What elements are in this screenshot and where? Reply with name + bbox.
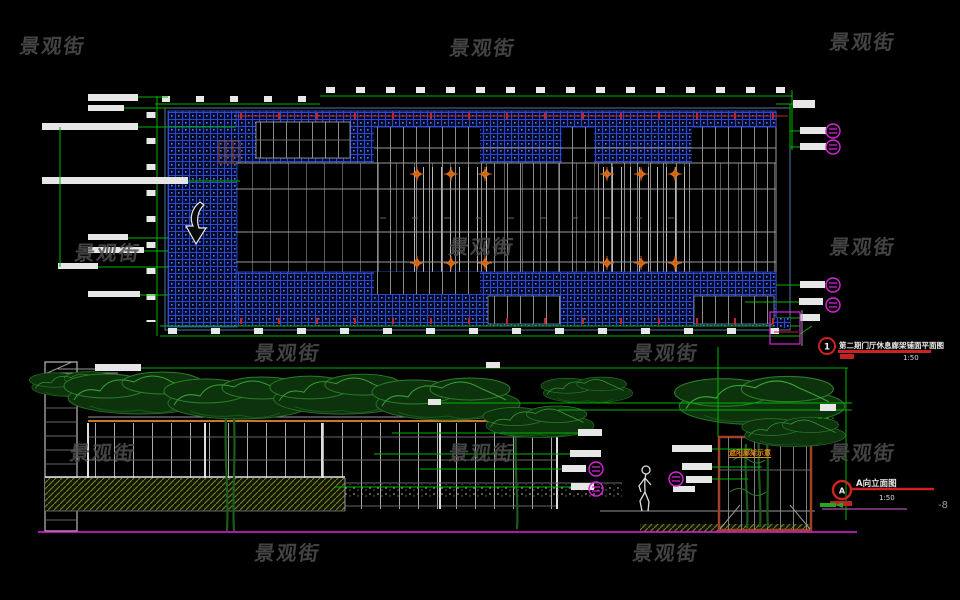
plan-title-block: 1 第二期门厅休息廊架铺面平面图 1:50 xyxy=(819,338,944,362)
tile-grid-top-gap1 xyxy=(374,127,480,163)
elevation-title: A向立面图 xyxy=(856,478,897,489)
plan-title: 第二期门厅休息廊架铺面平面图 xyxy=(839,340,944,350)
detail-callout-bubble xyxy=(589,462,603,476)
planter-hatch xyxy=(45,478,345,511)
plan-title-note-blob xyxy=(840,354,854,359)
person-figure xyxy=(639,466,651,511)
elevation-marker-letter: A xyxy=(839,487,846,496)
detail-callout-bubble xyxy=(826,298,840,312)
elevation-scale: 1:50 xyxy=(879,494,895,502)
edge-fragment: -8 xyxy=(938,500,948,511)
tile-grid-top-gap3 xyxy=(692,127,776,163)
tile-grid-dense-1 xyxy=(408,167,494,290)
detail-callout-bubble xyxy=(669,472,683,486)
cad-canvas: 1 第二期门厅休息廊架铺面平面图 1:50 xyxy=(0,0,960,600)
plan-callout-number: 1 xyxy=(824,343,830,353)
elevation-view: 遮阳廊架示意 xyxy=(29,347,948,532)
cad-drawing: 1 第二期门厅休息廊架铺面平面图 1:50 xyxy=(0,0,960,600)
detail-callout-bubble xyxy=(826,140,840,154)
paving-hatch-left-band xyxy=(168,111,237,327)
plan-scale: 1:50 xyxy=(903,354,919,362)
tile-grid-top-gap2 xyxy=(562,127,594,163)
tile-grid-dense-2 xyxy=(598,167,686,290)
detail-callout-bubble xyxy=(826,278,840,292)
paving-hatch-top-seg1 xyxy=(480,127,562,163)
plan-view: 1 第二期门厅休息廊架铺面平面图 1:50 xyxy=(42,90,944,362)
detail-callout-bubble xyxy=(826,124,840,138)
paving-hatch-top-seg2 xyxy=(594,127,692,163)
elevation-title-block: A A向立面图 1:50 -8 xyxy=(820,478,948,511)
